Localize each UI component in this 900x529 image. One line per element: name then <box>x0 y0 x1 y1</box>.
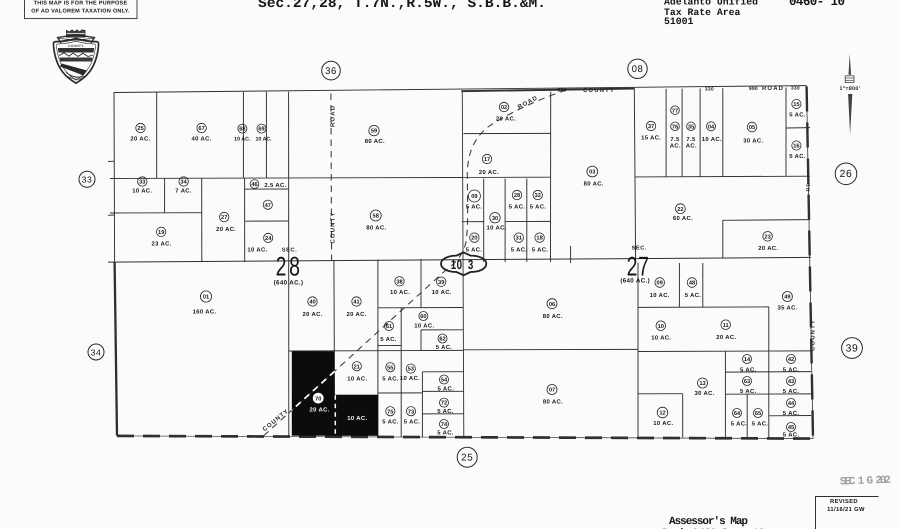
svg-text:74: 74 <box>441 422 448 428</box>
svg-text:19: 19 <box>158 230 164 236</box>
svg-text:10 AC.: 10 AC. <box>486 224 506 231</box>
svg-text:15: 15 <box>793 102 799 108</box>
svg-text:68: 68 <box>239 127 245 133</box>
svg-text:5 AC.: 5 AC. <box>382 419 399 426</box>
svg-text:20 AC.: 20 AC. <box>309 407 329 414</box>
svg-text:64: 64 <box>734 411 741 417</box>
svg-text:7.5: 7.5 <box>670 136 680 143</box>
svg-text:5 AC.: 5 AC. <box>509 204 526 211</box>
svg-text:10 AC.: 10 AC. <box>234 136 251 142</box>
svg-text:38: 38 <box>396 279 402 285</box>
svg-text:10 AC.: 10 AC. <box>702 136 722 143</box>
svg-text:80 AC.: 80 AC. <box>584 180 604 187</box>
svg-text:10 AC.: 10 AC. <box>390 289 410 296</box>
svg-text:AC.: AC. <box>686 142 697 149</box>
svg-text:33: 33 <box>139 180 145 186</box>
svg-text:330: 330 <box>791 85 800 91</box>
svg-text:10: 10 <box>658 324 664 330</box>
svg-text:31: 31 <box>516 236 522 242</box>
svg-text:61: 61 <box>386 324 392 330</box>
svg-text:13: 13 <box>699 381 705 387</box>
svg-text:22: 22 <box>677 207 683 213</box>
svg-text:3: 3 <box>468 257 473 272</box>
svg-text:AC.: AC. <box>670 142 681 149</box>
svg-text:76: 76 <box>672 124 678 130</box>
svg-text:7.5: 7.5 <box>686 136 696 143</box>
svg-text:26: 26 <box>840 169 853 180</box>
svg-text:ROAD: ROAD <box>330 105 337 127</box>
svg-text:10 AC.: 10 AC. <box>651 335 671 342</box>
svg-text:REVISED: REVISED <box>830 498 858 505</box>
svg-text:18: 18 <box>536 236 542 242</box>
svg-text:27: 27 <box>221 215 227 221</box>
svg-text:OF AD VALOREM TAXATION ONLY.: OF AD VALOREM TAXATION ONLY. <box>31 9 130 15</box>
svg-text:54: 54 <box>441 378 448 384</box>
svg-text:35: 35 <box>688 124 694 130</box>
svg-text:20 AC.: 20 AC. <box>302 311 322 318</box>
svg-text:330: 330 <box>705 86 714 92</box>
svg-text:5 AC.: 5 AC. <box>532 247 549 254</box>
svg-text:20 AC.: 20 AC. <box>479 169 499 176</box>
svg-text:14: 14 <box>744 357 751 363</box>
svg-text:51001: 51001 <box>664 16 694 27</box>
svg-text:2: 2 <box>276 252 287 282</box>
svg-text:5 AC.: 5 AC. <box>685 292 702 299</box>
svg-text:5 AC.: 5 AC. <box>466 204 483 211</box>
svg-text:10 AC.: 10 AC. <box>347 376 367 383</box>
svg-text:40 AC.: 40 AC. <box>191 135 211 142</box>
svg-text:5 AC.: 5 AC. <box>436 344 453 351</box>
svg-text:12: 12 <box>659 411 665 417</box>
svg-text:10 AC.: 10 AC. <box>400 375 420 382</box>
svg-text:20 AC.: 20 AC. <box>496 116 516 123</box>
svg-text:34: 34 <box>180 180 187 186</box>
svg-text:73: 73 <box>408 409 414 415</box>
svg-text:42: 42 <box>788 357 794 363</box>
svg-text:5 AC.: 5 AC. <box>466 247 483 254</box>
svg-text:60 AC.: 60 AC. <box>673 215 693 222</box>
svg-text:25: 25 <box>137 126 143 132</box>
svg-text:77: 77 <box>672 108 678 114</box>
svg-text:75: 75 <box>387 409 393 415</box>
svg-text:5 AC.: 5 AC. <box>438 386 455 393</box>
svg-text:330: 330 <box>557 87 566 93</box>
svg-text:10 AC.: 10 AC. <box>432 289 452 296</box>
svg-text:11/16/21 GW: 11/16/21 GW <box>827 506 865 513</box>
svg-text:990: 990 <box>749 86 758 92</box>
svg-text:60: 60 <box>420 314 426 320</box>
svg-text:44: 44 <box>788 401 795 407</box>
svg-text:20 AC.: 20 AC. <box>346 311 366 318</box>
svg-text:08: 08 <box>632 64 644 75</box>
svg-text:45: 45 <box>788 425 794 431</box>
svg-text:20 AC.: 20 AC. <box>716 334 736 341</box>
svg-text:80 AC.: 80 AC. <box>543 313 563 320</box>
svg-text:0460- 10: 0460- 10 <box>789 0 845 9</box>
svg-text:28: 28 <box>514 193 520 199</box>
svg-text:5 AC.: 5 AC. <box>783 410 800 417</box>
svg-text:48: 48 <box>689 281 695 287</box>
svg-text:09: 09 <box>657 281 663 287</box>
svg-text:39: 39 <box>438 280 444 286</box>
svg-text:15 AC.: 15 AC. <box>641 134 661 141</box>
svg-text:02: 02 <box>501 105 507 111</box>
svg-text:55: 55 <box>387 365 393 371</box>
svg-text:COUNTY: COUNTY <box>810 319 817 351</box>
svg-text:5 AC.: 5 AC. <box>437 408 454 415</box>
svg-text:5 AC.: 5 AC. <box>511 247 528 254</box>
svg-text:COUNTY: COUNTY <box>68 44 84 48</box>
svg-text:10 AC.: 10 AC. <box>247 247 267 254</box>
svg-text:36: 36 <box>325 66 337 77</box>
svg-text:70: 70 <box>315 396 321 402</box>
svg-text:5 AC.: 5 AC. <box>789 112 806 119</box>
svg-text:5 AC.: 5 AC. <box>382 376 399 383</box>
svg-text:20 AC.: 20 AC. <box>130 135 150 142</box>
svg-text:20: 20 <box>471 236 477 242</box>
svg-text:5 AC.: 5 AC. <box>783 388 800 395</box>
svg-text:33: 33 <box>82 175 93 185</box>
svg-text:67: 67 <box>198 126 204 132</box>
svg-text:5 AC.: 5 AC. <box>530 204 547 211</box>
svg-text:46: 46 <box>251 182 257 188</box>
svg-text:20 AC.: 20 AC. <box>216 226 236 233</box>
svg-text:37: 37 <box>648 124 654 130</box>
svg-text:10 AC.: 10 AC. <box>132 188 152 195</box>
svg-text:01: 01 <box>203 295 209 301</box>
svg-text:25: 25 <box>461 453 473 464</box>
svg-text:1"=800': 1"=800' <box>839 86 860 92</box>
svg-text:39: 39 <box>846 343 859 354</box>
svg-text:(640 AC.): (640 AC.) <box>274 280 304 287</box>
svg-text:SEC 1 G 202: SEC 1 G 202 <box>840 475 891 489</box>
svg-text:49: 49 <box>784 295 790 301</box>
svg-text:5 AC.: 5 AC. <box>437 430 454 437</box>
svg-text:23: 23 <box>764 234 770 240</box>
svg-text:10: 10 <box>451 257 463 272</box>
svg-text:10 AC.: 10 AC. <box>653 420 673 427</box>
svg-text:10 AC.: 10 AC. <box>255 136 272 142</box>
svg-text:(640 AC.): (640 AC.) <box>620 278 650 285</box>
svg-text:5 AC.: 5 AC. <box>740 366 757 373</box>
svg-text:59: 59 <box>371 129 377 135</box>
svg-text:5 AC.: 5 AC. <box>752 421 769 428</box>
svg-text:40: 40 <box>309 300 315 306</box>
svg-text:80 AC.: 80 AC. <box>543 399 563 406</box>
svg-text:47: 47 <box>265 203 271 209</box>
svg-text:160 AC.: 160 AC. <box>193 309 217 316</box>
svg-text:41: 41 <box>353 300 359 306</box>
svg-text:69: 69 <box>258 127 264 133</box>
svg-text:30: 30 <box>492 216 498 222</box>
svg-text:80 AC.: 80 AC. <box>366 225 386 232</box>
svg-text:10 AC.: 10 AC. <box>414 322 434 329</box>
svg-text:21: 21 <box>354 364 360 370</box>
svg-text:10 AC.: 10 AC. <box>650 292 670 299</box>
svg-text:5 AC.: 5 AC. <box>783 366 800 373</box>
svg-text:17: 17 <box>484 157 490 163</box>
svg-text:63: 63 <box>744 379 750 385</box>
svg-text:30 AC.: 30 AC. <box>694 390 714 397</box>
svg-text:5 AC.: 5 AC. <box>731 421 748 428</box>
svg-text:5 AC.: 5 AC. <box>740 388 757 395</box>
svg-text:58: 58 <box>373 214 379 220</box>
svg-text:10 AC.: 10 AC. <box>347 415 367 422</box>
svg-text:72: 72 <box>441 401 447 407</box>
svg-text:53: 53 <box>408 367 414 373</box>
svg-text:20 AC.: 20 AC. <box>758 245 778 252</box>
svg-text:RD: RD <box>806 182 812 192</box>
svg-text:35 AC.: 35 AC. <box>777 304 797 311</box>
svg-text:32: 32 <box>535 193 541 199</box>
svg-text:5 AC.: 5 AC. <box>380 336 397 343</box>
svg-text:THIS MAP IS FOR THE PURPOSE: THIS MAP IS FOR THE PURPOSE <box>34 1 128 7</box>
svg-text:8: 8 <box>289 252 300 282</box>
svg-text:23 AC.: 23 AC. <box>151 241 171 248</box>
svg-text:24: 24 <box>265 236 272 242</box>
svg-text:5 AC.: 5 AC. <box>783 432 800 439</box>
svg-text:43: 43 <box>788 379 794 385</box>
svg-text:06: 06 <box>549 302 555 308</box>
svg-text:ROAD: ROAD <box>762 85 784 92</box>
svg-text:Assessor's Map: Assessor's Map <box>669 516 748 528</box>
svg-text:11: 11 <box>723 323 729 329</box>
svg-text:2.5 AC.: 2.5 AC. <box>264 182 286 189</box>
svg-text:5 AC.: 5 AC. <box>789 153 806 160</box>
svg-text:Sec.27,28, T.7N.,R.5W., S.B.B.: Sec.27,28, T.7N.,R.5W., S.B.B.&M. <box>258 0 546 12</box>
svg-text:05: 05 <box>749 125 755 131</box>
svg-text:80 AC.: 80 AC. <box>365 138 385 145</box>
svg-text:03: 03 <box>589 170 595 176</box>
svg-text:04: 04 <box>708 124 715 130</box>
svg-text:COUNTY: COUNTY <box>330 212 337 244</box>
svg-text:62: 62 <box>439 337 445 343</box>
svg-text:COUNTY: COUNTY <box>583 87 615 94</box>
svg-text:7 AC.: 7 AC. <box>175 188 192 195</box>
svg-text:65: 65 <box>755 411 761 417</box>
svg-text:34: 34 <box>91 347 102 357</box>
svg-text:30 AC.: 30 AC. <box>743 138 763 145</box>
svg-text:5 AC.: 5 AC. <box>404 419 421 426</box>
svg-text:07: 07 <box>549 388 555 394</box>
svg-text:16: 16 <box>793 144 799 150</box>
svg-text:09: 09 <box>471 194 477 200</box>
